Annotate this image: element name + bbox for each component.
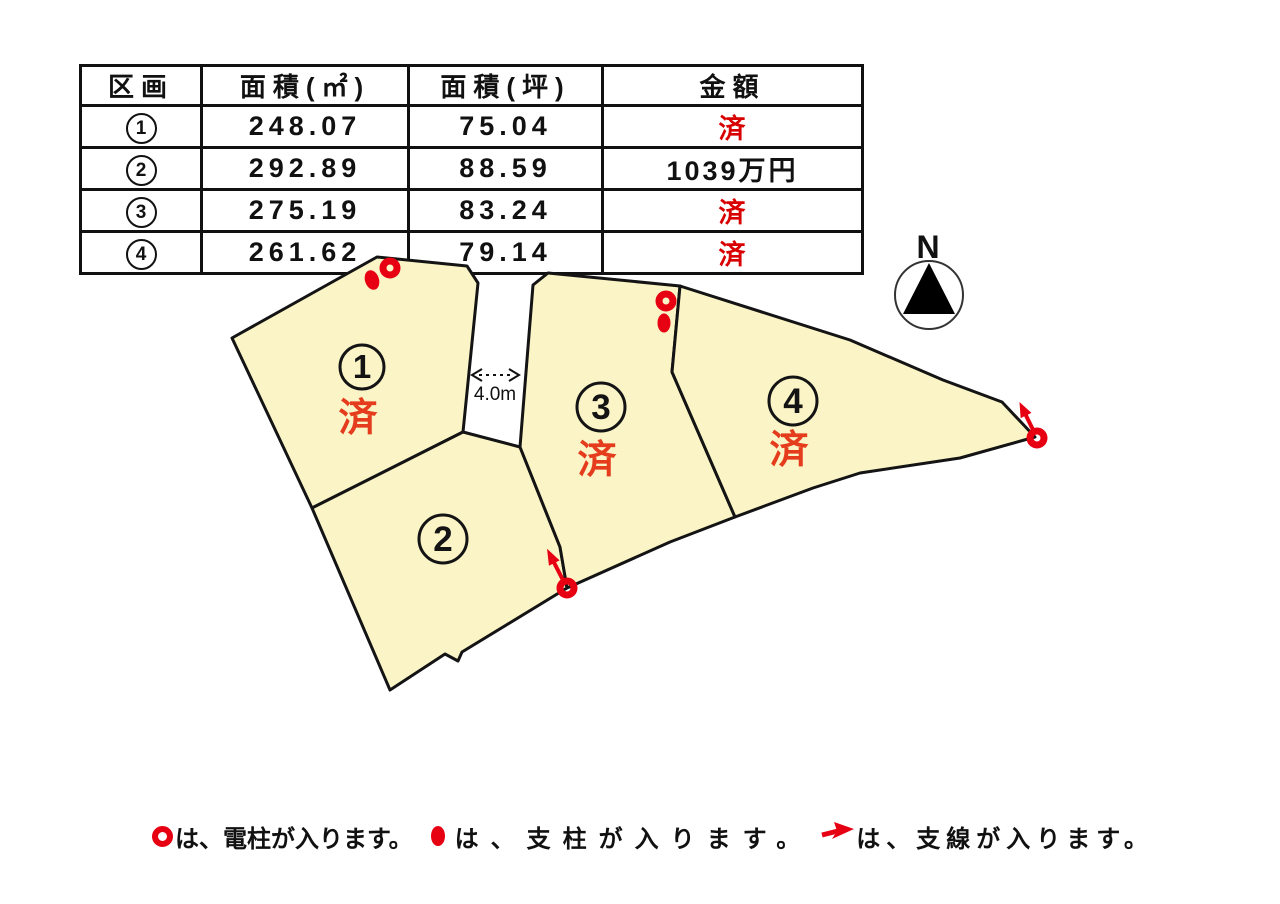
plot-number: 1 xyxy=(353,348,371,385)
guy-wire-icon xyxy=(820,819,856,848)
plot-number: 2 xyxy=(433,520,452,559)
plot-status: 済 xyxy=(338,397,377,440)
compass: N xyxy=(895,229,963,329)
legend: は、電柱が入ります。 は、支柱が入ります。 は、支線が入ります。 xyxy=(152,818,1154,854)
land-plot-flyer: 区画 面積(㎡) 面積(坪) 金額 1 248.07 75.04 済 2 292… xyxy=(0,0,1280,904)
utility-pole-marker xyxy=(1030,431,1044,445)
compass-north-label: N xyxy=(916,229,939,265)
legend-item-utility-pole: は、電柱が入ります。 xyxy=(175,819,413,854)
support-post-icon xyxy=(431,826,445,846)
legend-item-guy-wire: は、支線が入ります。 xyxy=(856,819,1154,854)
plot-status: 済 xyxy=(577,439,616,482)
plot-4-area xyxy=(672,286,1035,517)
plot-number: 4 xyxy=(783,382,803,421)
plot-number: 3 xyxy=(591,388,610,427)
site-plan-map: 4.0m 1 済 2 3 済 4 済 xyxy=(0,0,1280,904)
utility-pole-icon xyxy=(152,826,173,847)
plot-status: 済 xyxy=(769,429,808,472)
road-width-measure: 4.0m xyxy=(472,369,519,405)
road-width-label: 4.0m xyxy=(474,384,516,405)
support-post-marker xyxy=(658,314,671,333)
legend-item-support-post: は、支柱が入ります。 xyxy=(455,819,813,854)
